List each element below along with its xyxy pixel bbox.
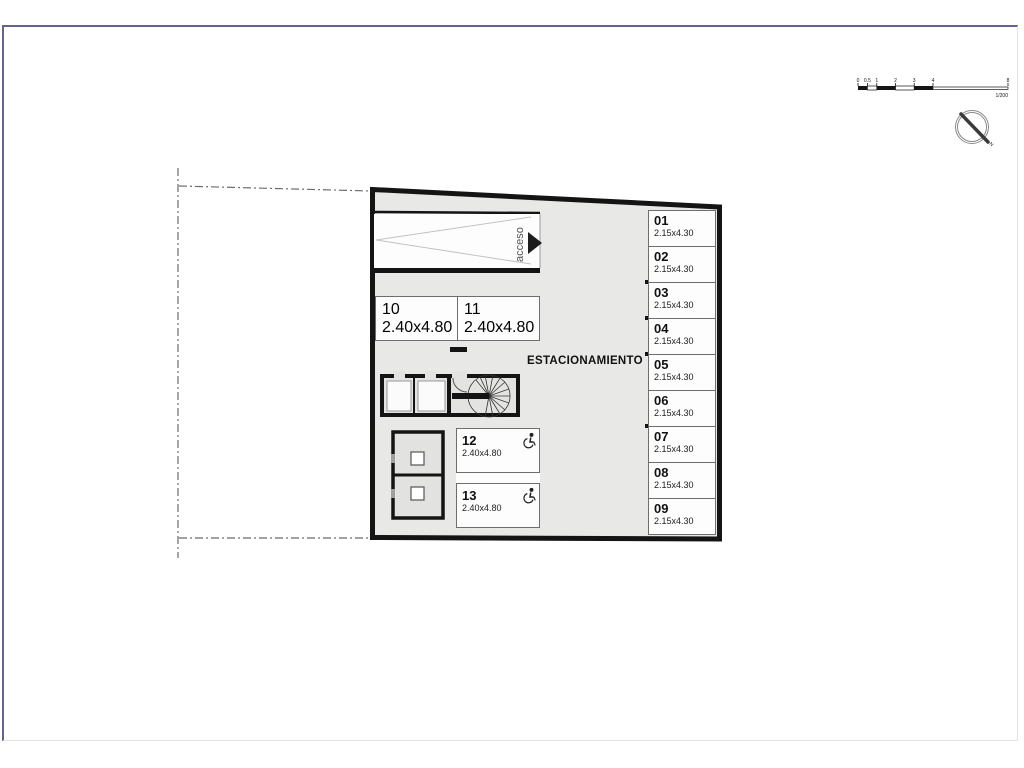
scale-ratio-label: 1/200 bbox=[995, 93, 1008, 99]
stall-dimension: 2.15x4.30 bbox=[654, 408, 715, 419]
elevator-block bbox=[391, 432, 443, 518]
scale-tick-label: 3 bbox=[913, 78, 916, 84]
wheelchair-icon bbox=[521, 487, 536, 504]
parking-stall-09: 09 2.15x4.30 bbox=[648, 498, 716, 535]
stall-dimension: 2.15x4.30 bbox=[654, 480, 715, 491]
stall-number: 10 bbox=[382, 301, 400, 318]
scale-tick-label: 8 bbox=[1007, 78, 1010, 84]
stall-dimension: 2.15x4.30 bbox=[654, 372, 715, 383]
parking-stall-06: 06 2.15x4.30 bbox=[648, 390, 716, 427]
scale-tick-label: 1 bbox=[875, 78, 878, 84]
parking-stall-05: 05 2.15x4.30 bbox=[648, 354, 716, 391]
stall-number: 04 bbox=[654, 321, 715, 336]
stall-number: 09 bbox=[654, 501, 715, 516]
parking-stall-13: 13 2.40x4.80 bbox=[456, 483, 540, 528]
stall-dimension: 2.15x4.30 bbox=[654, 264, 715, 275]
parking-stall-03: 03 2.15x4.30 bbox=[648, 282, 716, 319]
scale-bar: 0 0.5 1 2 3 4 8 1/200 bbox=[857, 78, 1010, 99]
scale-tick-label: 0 bbox=[857, 78, 860, 84]
stall-dimension: 2.15x4.30 bbox=[654, 228, 715, 239]
wheelchair-icon bbox=[521, 432, 536, 449]
parking-stall-07: 07 2.15x4.30 bbox=[648, 426, 716, 463]
stall-dimension: 2.40x4.80 bbox=[464, 319, 534, 336]
stall-dimension: 2.15x4.30 bbox=[654, 336, 715, 347]
parking-stall-02: 02 2.15x4.30 bbox=[648, 246, 716, 283]
stall-number: 05 bbox=[654, 357, 715, 372]
ramp: acceso bbox=[374, 212, 542, 271]
parking-stall-11: 11 2.40x4.80 bbox=[457, 297, 539, 340]
parking-stall-08: 08 2.15x4.30 bbox=[648, 462, 716, 499]
plan-linework: acceso bbox=[0, 0, 1024, 768]
scale-tick-label: 4 bbox=[932, 78, 935, 84]
area-label: ESTACIONAMIENTO bbox=[527, 355, 643, 367]
parking-stall-10: 10 2.40x4.80 bbox=[376, 297, 457, 340]
stall-dimension: 2.15x4.30 bbox=[654, 444, 715, 455]
stair-core bbox=[382, 371, 518, 417]
stall-dimension: 2.40x4.80 bbox=[382, 319, 452, 336]
parking-stalls-10-11: 10 2.40x4.80 11 2.40x4.80 bbox=[375, 296, 540, 341]
property-line bbox=[178, 168, 371, 558]
stall-dimension: 2.15x4.30 bbox=[654, 516, 715, 527]
stall-number: 06 bbox=[654, 393, 715, 408]
stall-number: 01 bbox=[654, 213, 715, 228]
stall-dimension: 2.15x4.30 bbox=[654, 300, 715, 311]
stall-number: 07 bbox=[654, 429, 715, 444]
stall-number: 11 bbox=[464, 301, 481, 318]
stall-number: 02 bbox=[654, 249, 715, 264]
stall-number: 08 bbox=[654, 465, 715, 480]
stall-dimension: 2.40x4.80 bbox=[462, 503, 539, 514]
floorplan-canvas: acceso bbox=[0, 0, 1024, 768]
north-compass-icon: N bbox=[956, 111, 995, 149]
parking-stall-01: 01 2.15x4.30 bbox=[648, 210, 716, 247]
parking-stall-04: 04 2.15x4.30 bbox=[648, 318, 716, 355]
column-marker bbox=[450, 347, 467, 352]
scale-tick-label: 0.5 bbox=[864, 78, 871, 84]
ramp-access-label: acceso bbox=[514, 227, 526, 262]
stall-dimension: 2.40x4.80 bbox=[462, 448, 539, 459]
parking-stall-12: 12 2.40x4.80 bbox=[456, 428, 540, 473]
scale-tick-label: 2 bbox=[894, 78, 897, 84]
stall-number: 03 bbox=[654, 285, 715, 300]
